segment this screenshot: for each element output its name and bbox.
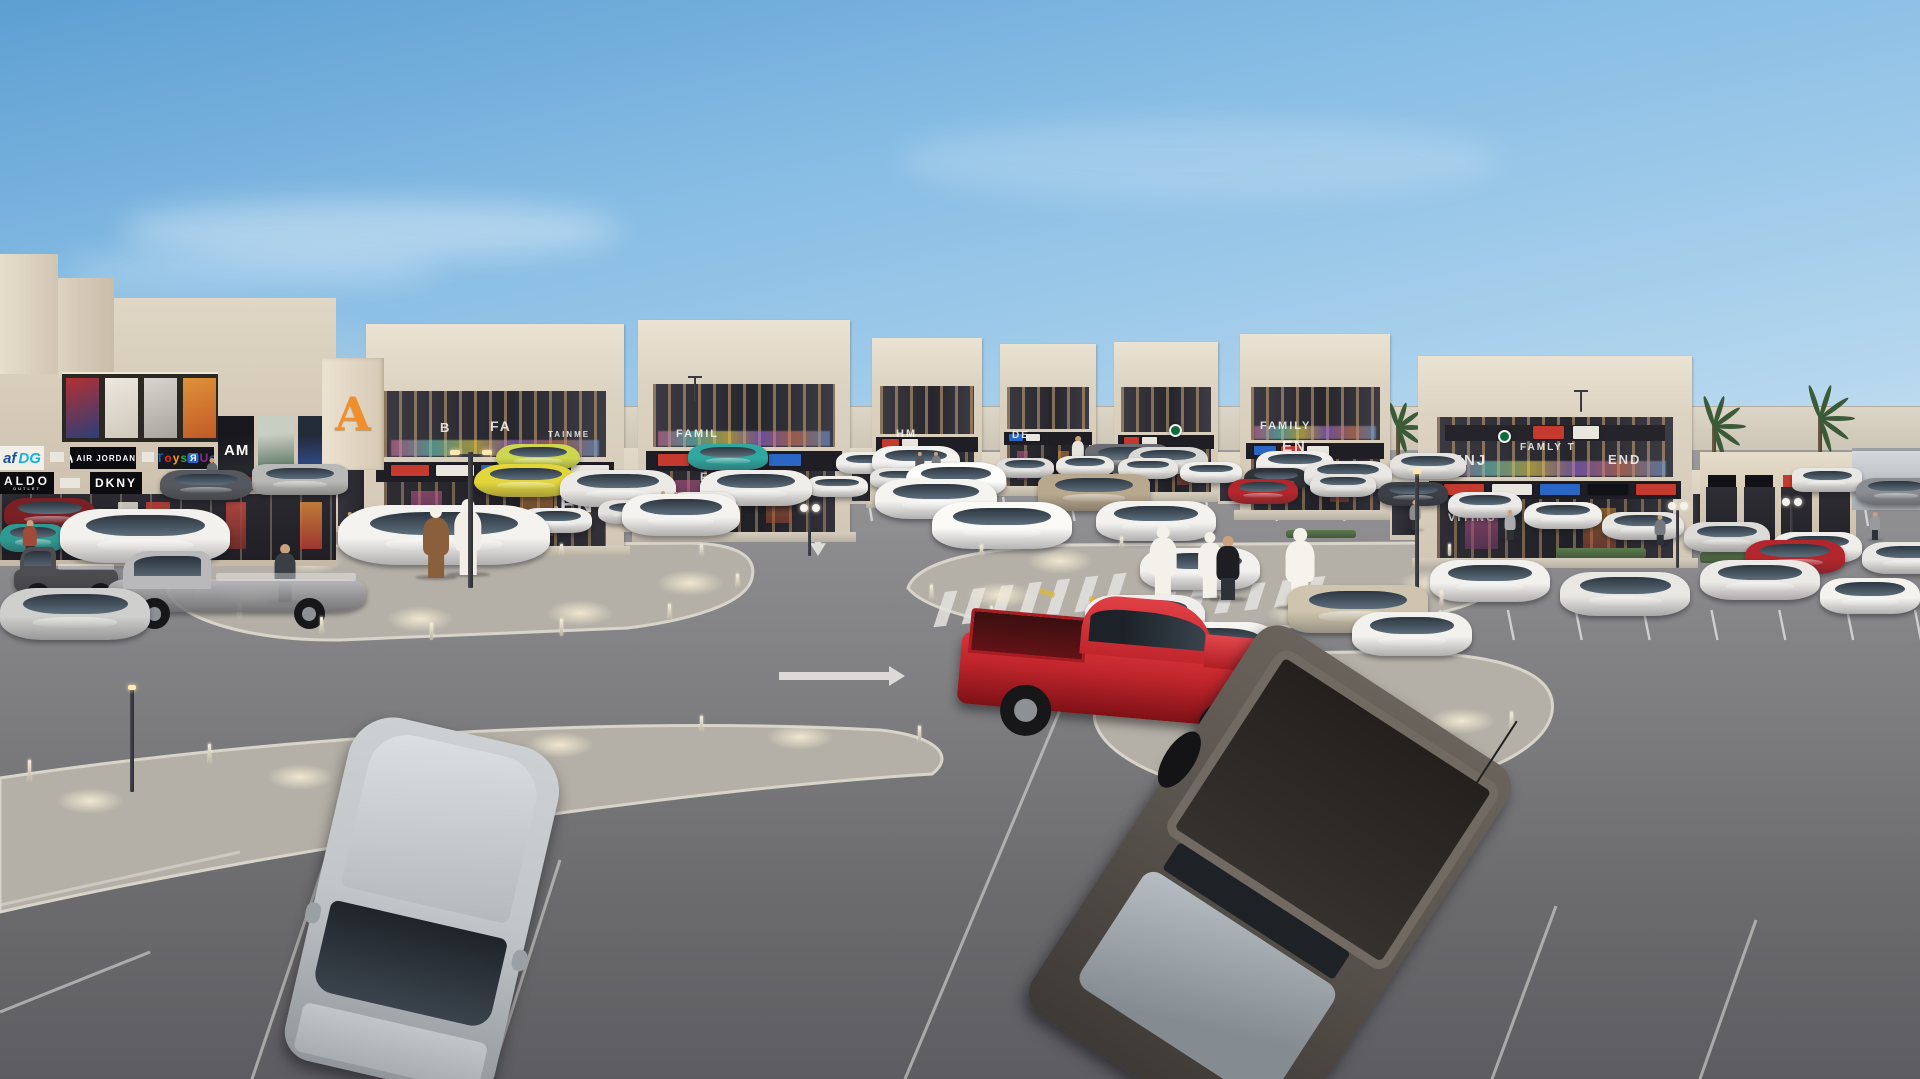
store-sign-small: [50, 452, 64, 462]
truck-bed-rim: [58, 564, 114, 570]
poster-text-am: AM: [224, 442, 249, 459]
sedan-car: [688, 444, 768, 470]
toys-letter: T: [158, 451, 163, 465]
sedan-car: [1602, 512, 1684, 540]
lamp-pole: [468, 452, 473, 588]
distant-street-lamp: [1580, 390, 1582, 412]
store-sign-air-jordan: AIR JORDAN: [70, 447, 136, 469]
lamp-post: [468, 452, 473, 588]
person-body: [1655, 520, 1666, 536]
sedan-car: [1524, 502, 1602, 529]
van-car: [1792, 468, 1862, 492]
pavilion-upper-glass: [880, 386, 975, 434]
truck-bed-rim: [216, 573, 355, 580]
store-sign: [391, 465, 429, 477]
bollard: [980, 545, 983, 556]
globe: [812, 504, 820, 512]
hedge: [1556, 548, 1646, 558]
sedan-car: [0, 588, 150, 640]
glass-text: END: [1608, 452, 1641, 467]
ground-light-glow: [1026, 548, 1094, 574]
ground-light-glow: [56, 788, 124, 814]
lamp-head: [450, 450, 460, 455]
ground-light-glow: [266, 764, 334, 790]
globe-lamp: [1676, 502, 1680, 560]
bollard: [560, 544, 563, 556]
ground-light-glow: [546, 600, 614, 626]
billboard-poster: [144, 378, 177, 438]
cab-windows: [1088, 607, 1207, 651]
bollard: [28, 760, 31, 782]
person-body: [423, 518, 449, 555]
sedan-car: [1352, 612, 1472, 656]
plaza-render: AM afDG AIR JORDAN ToysRUs ALDOOUTLET DK…: [0, 0, 1920, 1079]
sedan-car: [1560, 572, 1690, 616]
bollard: [930, 585, 933, 600]
pedestrian: [421, 506, 451, 578]
pedestrian: [1654, 515, 1667, 545]
cab-window: [24, 551, 51, 566]
light-pole: [130, 688, 134, 792]
ground-light-glow: [766, 724, 834, 750]
globe: [1794, 498, 1802, 506]
pole: [808, 512, 811, 556]
truck-cab: [123, 551, 211, 589]
glass-text: HM: [896, 428, 917, 440]
pole: [1415, 472, 1419, 590]
person-legs: [1657, 535, 1664, 545]
globe-lamp: [808, 504, 812, 548]
billboard-band: [62, 374, 218, 442]
bollard: [668, 604, 671, 620]
person-head: [1157, 526, 1170, 539]
billboard-poster: [105, 378, 138, 438]
sedan-car: [1862, 542, 1920, 574]
store-sign: [769, 454, 800, 465]
glass-text: DE: [1012, 430, 1030, 441]
pedestrian: [1147, 526, 1178, 600]
starbucks-icon: [1169, 424, 1182, 437]
bollard: [918, 726, 921, 742]
globe: [1680, 502, 1688, 510]
store-sign-small: [142, 452, 154, 462]
billboard-poster: [66, 378, 99, 438]
pedestrian: [1215, 536, 1242, 600]
pole: [130, 688, 134, 792]
store-sign: [1708, 475, 1736, 487]
store-sign-small: [60, 478, 80, 488]
sedan-car: [1180, 462, 1242, 483]
bollard: [700, 716, 703, 732]
globe: [1782, 498, 1790, 506]
person-body: [1870, 516, 1880, 531]
sedan-car: [1390, 453, 1466, 479]
store-sign: [1573, 426, 1599, 439]
bollard: [700, 545, 703, 556]
toys-letter: o: [164, 451, 171, 465]
sedan-car: [1820, 578, 1920, 614]
bollard: [1120, 537, 1123, 548]
sedan-car: [1700, 560, 1820, 600]
globe: [1668, 502, 1676, 510]
pavilion-upper-glass: [1007, 387, 1090, 430]
person-legs: [1872, 530, 1878, 540]
person-legs: [428, 554, 444, 578]
lamp-head: [482, 450, 492, 455]
person-legs: [1507, 530, 1514, 540]
globe: [800, 504, 808, 512]
person-body: [1505, 515, 1516, 531]
arm: [1574, 390, 1588, 392]
distant-street-lamp: [694, 376, 696, 402]
truck-cab: [20, 547, 55, 576]
jumpman-icon: [70, 453, 74, 462]
billboard-poster: [183, 378, 216, 438]
person-head: [1223, 536, 1234, 547]
pole: [1580, 390, 1582, 412]
sedan-car: [932, 502, 1072, 549]
glass-text: B: [440, 420, 451, 435]
sedan-car: [1856, 478, 1920, 505]
person-legs: [1221, 578, 1235, 600]
pole: [694, 376, 696, 402]
pedestrian: [1869, 512, 1881, 540]
person-body: [1150, 538, 1177, 576]
person-body: [1216, 546, 1239, 579]
bollard: [208, 744, 211, 764]
bollard: [560, 619, 563, 636]
pavilion-top-sign-band: [1445, 425, 1664, 441]
mall-logo-a: A: [335, 387, 371, 441]
bollard: [1448, 544, 1451, 556]
glass-text: FAMLY T: [1520, 442, 1576, 453]
store-sign: [1636, 484, 1676, 495]
left-tower-wall: [0, 254, 58, 374]
sedan-car: [622, 494, 740, 536]
lamp-head: [128, 685, 136, 690]
toys-letter: y: [173, 451, 180, 465]
pavilion-upper-glass: [1121, 387, 1210, 432]
starbucks-icon: [1498, 430, 1511, 443]
sedan-car: [806, 476, 868, 497]
bollard: [1440, 591, 1443, 606]
glass-text: FA: [490, 418, 512, 434]
person-head: [1293, 528, 1307, 542]
sedan-car: [1430, 560, 1550, 602]
lamp-head: [1413, 469, 1421, 474]
arm: [688, 376, 702, 378]
store-sign-sharaf-dg: afDG: [0, 446, 44, 470]
store-sign: [1533, 426, 1564, 439]
ground-light-glow: [656, 570, 724, 596]
bollard: [320, 617, 323, 634]
truck-cab: [1079, 593, 1216, 664]
bollard: [430, 623, 433, 640]
suv-car: [252, 464, 348, 495]
person-head: [430, 506, 442, 518]
sedan-car: [1228, 479, 1298, 504]
window-poster: [300, 502, 322, 550]
building-sidewalk: [1234, 510, 1396, 520]
glass-text: TAINME: [548, 430, 590, 439]
person-body: [1286, 541, 1315, 583]
toys-letter: s: [180, 451, 187, 465]
glass-text: FAMILY: [1260, 420, 1311, 432]
ground-light-glow: [386, 606, 454, 632]
store-sign-dkny: DKNY: [90, 472, 142, 494]
store-sign: [1745, 475, 1773, 487]
store-sign: [1588, 484, 1628, 495]
sedan-car: [1056, 456, 1114, 476]
wheel-hub: [1014, 698, 1038, 722]
left-tower-wall-2: [58, 278, 114, 378]
sedan-car: [1310, 474, 1376, 497]
bollard: [736, 574, 739, 588]
toys-letter: R: [188, 453, 199, 463]
pedestrian: [1504, 510, 1517, 540]
store-sign: [658, 454, 689, 465]
store-sign-aldo: ALDOOUTLET: [0, 472, 54, 494]
wheel-hub: [302, 607, 316, 621]
light-pole: [1415, 472, 1419, 590]
store-sign: [1540, 484, 1580, 495]
sedan-car: [160, 470, 252, 500]
pole: [1676, 510, 1679, 568]
glass-text: FAMIL: [676, 428, 719, 440]
cab-window: [134, 556, 201, 576]
mall-logo-tower: A: [322, 358, 384, 470]
